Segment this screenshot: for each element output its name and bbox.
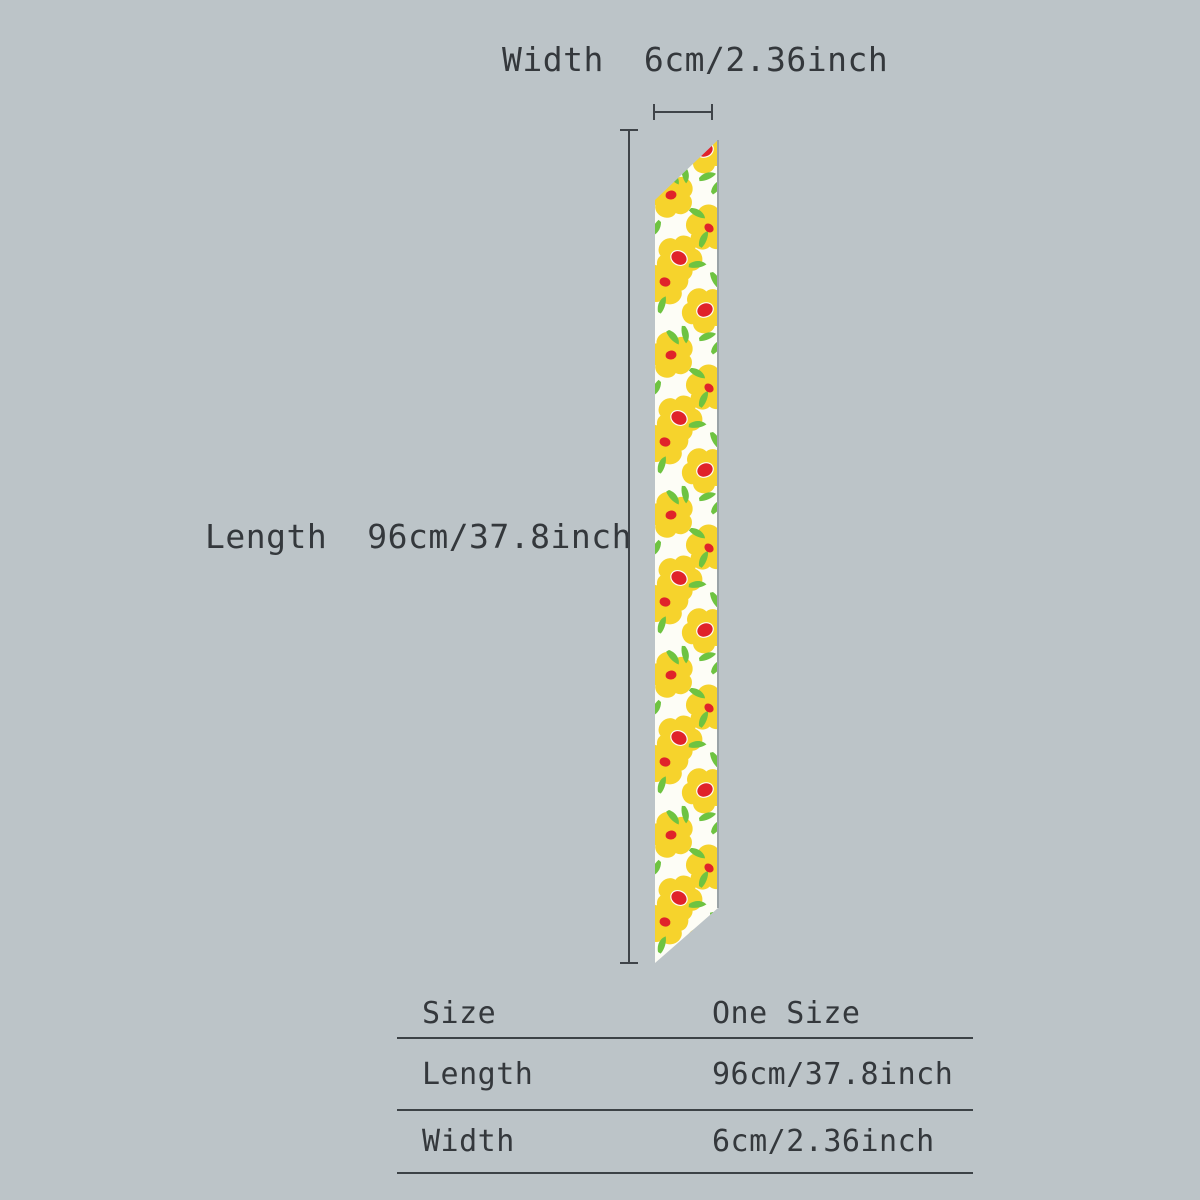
size-table-label: Size — [422, 996, 712, 1031]
size-table-value: 96cm/37.8inch — [712, 1057, 973, 1092]
scarf-image — [610, 100, 740, 990]
width-annotation-label: Width — [502, 41, 604, 79]
size-table-value: 6cm/2.36inch — [712, 1124, 973, 1159]
scarf-body — [655, 140, 718, 963]
size-chart-diagram: Width 6cm/2.36inch Length 96cm/37.8inch — [0, 0, 1200, 1200]
size-table-row-length: Length 96cm/37.8inch — [397, 1039, 973, 1111]
size-table-label: Length — [422, 1057, 712, 1092]
size-table: Size One Size Length 96cm/37.8inch Width… — [397, 990, 973, 1174]
length-annotation-label: Length — [205, 518, 327, 556]
width-annotation: Width 6cm/2.36inch — [502, 41, 888, 79]
size-table-label: Width — [422, 1124, 712, 1159]
width-annotation-value: 6cm/2.36inch — [644, 41, 888, 79]
size-table-row-width: Width 6cm/2.36inch — [397, 1111, 973, 1174]
length-annotation: Length 96cm/37.8inch — [205, 518, 632, 556]
size-table-row-size: Size One Size — [397, 990, 973, 1039]
length-annotation-value: 96cm/37.8inch — [367, 518, 632, 556]
size-table-value: One Size — [712, 996, 973, 1031]
